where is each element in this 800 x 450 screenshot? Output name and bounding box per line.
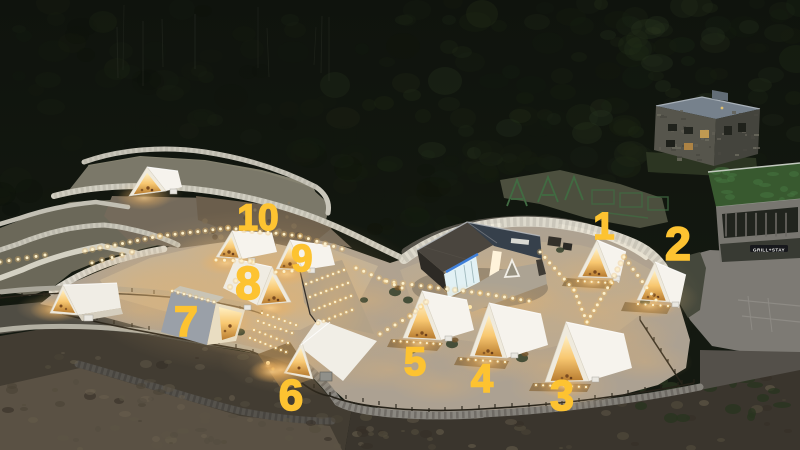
- svg-text:7: 7: [174, 298, 198, 346]
- svg-text:4: 4: [471, 357, 494, 401]
- svg-text:1: 1: [593, 206, 614, 248]
- svg-text:9: 9: [291, 238, 312, 280]
- svg-text:5: 5: [404, 340, 426, 384]
- svg-text:2: 2: [665, 217, 691, 270]
- svg-text:10: 10: [237, 197, 278, 238]
- svg-text:GRILL+STAY: GRILL+STAY: [753, 248, 785, 253]
- svg-text:8: 8: [235, 257, 261, 309]
- svg-text:6: 6: [279, 371, 303, 420]
- svg-text:3: 3: [550, 372, 574, 420]
